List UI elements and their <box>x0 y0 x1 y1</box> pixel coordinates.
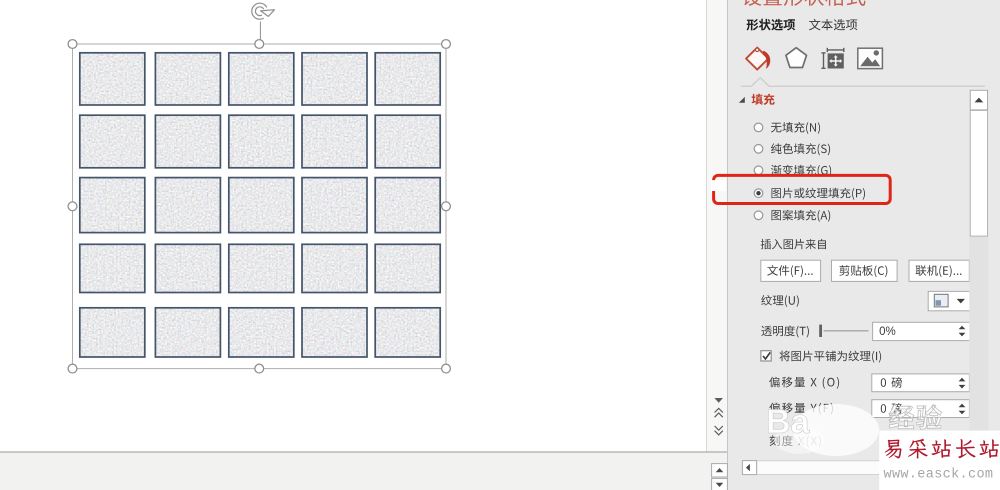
svg-text:Ba: Ba <box>766 403 811 441</box>
svg-text:www.easck.com: www.easck.com <box>884 468 994 483</box>
svg-text:0%: 0% <box>879 326 896 338</box>
